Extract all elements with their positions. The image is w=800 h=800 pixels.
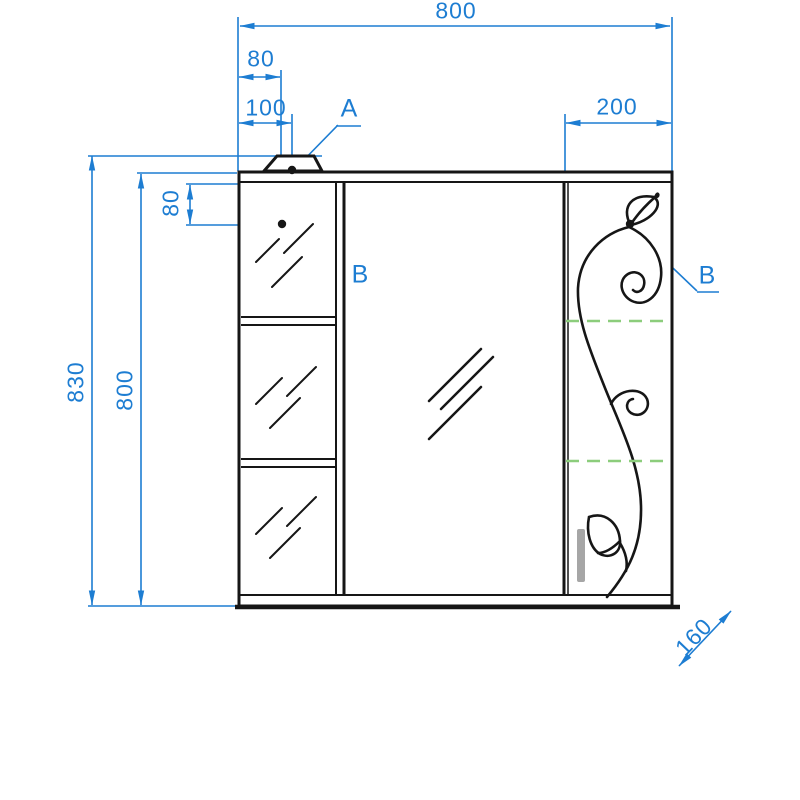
door-handle <box>577 529 585 582</box>
drawing-stage: 800 80 100 200 830 800 80 160 A B B <box>0 0 800 800</box>
label-lamp-offset: 80 <box>247 48 275 71</box>
label-lamp-center: 100 <box>245 97 286 120</box>
point-b-left-dot <box>278 220 286 228</box>
label-overall-width: 800 <box>435 0 476 23</box>
label-right-section-width: 200 <box>596 96 637 119</box>
label-total-height: 830 <box>65 361 88 402</box>
callout-b-left: B <box>352 263 369 288</box>
callout-b-right: B <box>699 264 716 289</box>
label-fixing-offset: 80 <box>160 189 183 217</box>
label-cabinet-height: 800 <box>114 369 137 410</box>
callout-a: A <box>341 97 358 122</box>
point-a-dot <box>288 166 296 174</box>
point-b-right-dot <box>626 220 634 228</box>
cabinet-structure <box>235 156 680 607</box>
